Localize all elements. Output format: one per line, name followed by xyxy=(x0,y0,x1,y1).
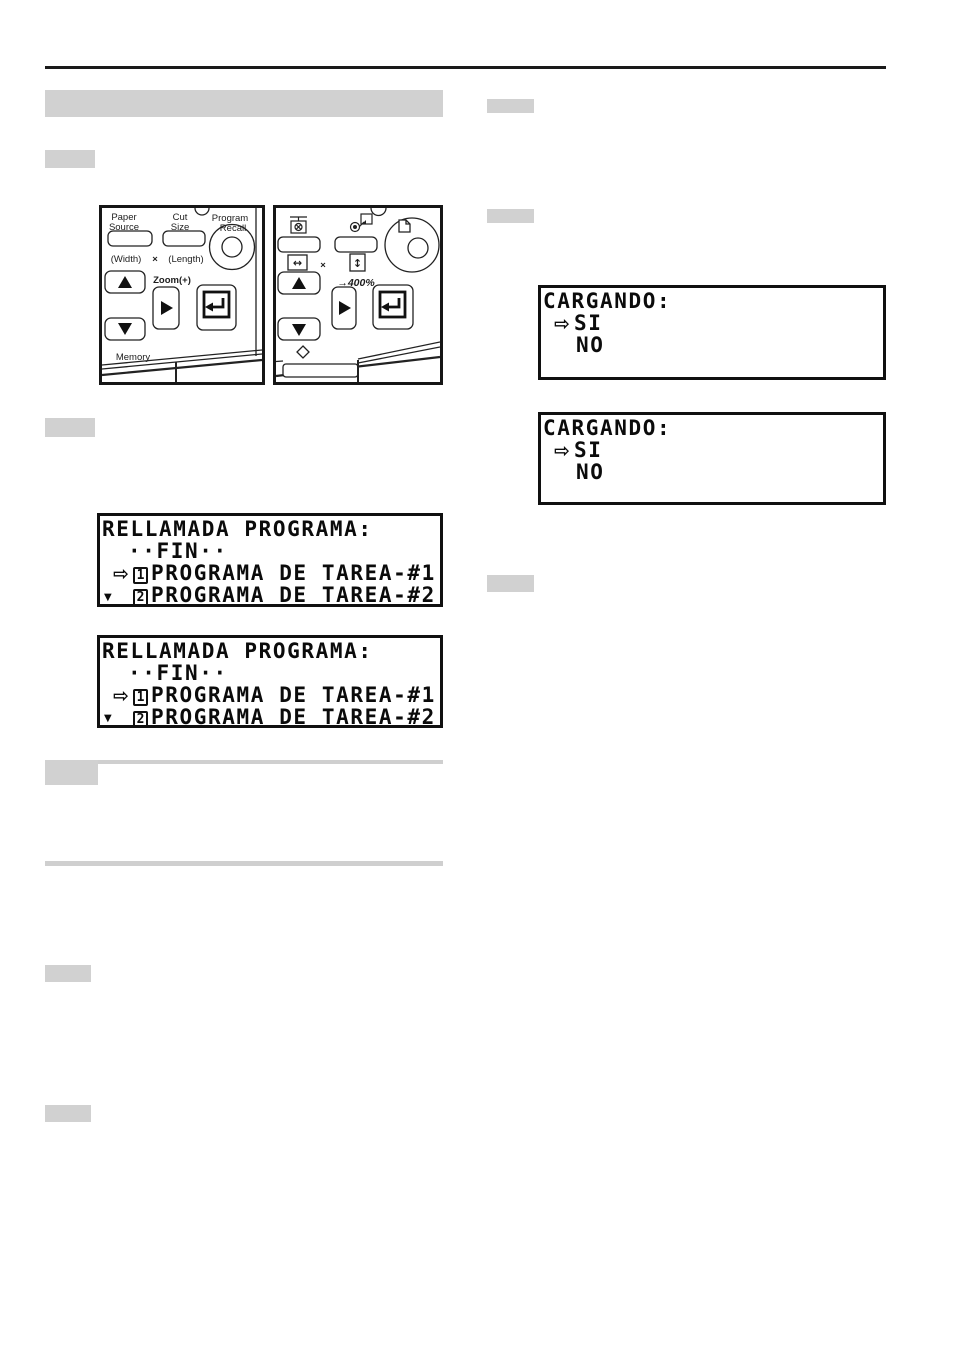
lcd-option-no: NO xyxy=(576,460,605,484)
lcd-item-2: PROGRAMA DE TAREA-#2 xyxy=(151,583,436,607)
cut-size-icon xyxy=(351,214,373,232)
enter-icon xyxy=(204,292,229,317)
right-arrow-icon xyxy=(161,301,173,315)
manual-page: Paper Source Cut Size Program Recall (Wi… xyxy=(0,0,954,1350)
note-label-badge xyxy=(45,760,98,785)
panel-notch xyxy=(195,208,209,215)
lcd-loading-display-1: CARGANDO: ⇨SI NO xyxy=(538,285,886,380)
width-icon: ↔ xyxy=(293,257,302,270)
lcd-program-recall-display-1: RELLAMADA PROGRAMA: ··FIN·· ⇨1PROGRAMA D… xyxy=(97,513,443,607)
paper-source-button xyxy=(278,237,320,252)
times-label: × xyxy=(152,254,158,265)
up-arrow-icon xyxy=(118,276,132,288)
control-panel-diagram-right: ↔ × ↕ →400% xyxy=(273,205,443,385)
lcd-item-2: PROGRAMA DE TAREA-#2 xyxy=(151,705,436,729)
lcd-title: RELLAMADA PROGRAMA: xyxy=(102,517,373,541)
header-rule xyxy=(45,66,886,69)
times-label: × xyxy=(320,260,326,271)
step-badge-r3 xyxy=(487,575,534,592)
section-title-bar xyxy=(45,90,443,117)
lcd-title: CARGANDO: xyxy=(543,289,671,313)
cursor-arrow-icon: ⇨ xyxy=(554,440,574,462)
lcd-loading-display-2: CARGANDO: ⇨SI NO xyxy=(538,412,886,505)
lcd-title: RELLAMADA PROGRAMA: xyxy=(102,639,373,663)
lcd-end-item: ··FIN·· xyxy=(128,539,228,563)
cursor-arrow-icon: ⇨ xyxy=(113,563,133,585)
note-bottom-rule xyxy=(45,861,443,866)
lcd-option-yes: SI xyxy=(574,438,603,462)
control-panel-diagram-left: Paper Source Cut Size Program Recall (Wi… xyxy=(99,205,265,385)
boxed-digit: 2 xyxy=(133,589,148,606)
boxed-digit: 2 xyxy=(133,711,148,728)
cursor-arrow-icon: ⇨ xyxy=(113,685,133,707)
down-arrow-icon xyxy=(292,324,306,336)
right-arrow-icon xyxy=(339,301,351,315)
cut-size-button xyxy=(163,231,205,246)
program-recall-dial-center xyxy=(408,238,428,258)
lcd-item-1: PROGRAMA DE TAREA-#1 xyxy=(151,561,436,585)
paper-source-button xyxy=(108,231,152,246)
cursor-arrow-icon: ⇨ xyxy=(554,313,574,335)
paper-slot xyxy=(283,364,358,377)
step-badge-r1 xyxy=(487,99,534,113)
cut-size-button xyxy=(335,237,377,252)
lcd-option-yes: SI xyxy=(574,311,603,335)
boxed-digit: 1 xyxy=(133,567,148,584)
length-label: (Length) xyxy=(168,254,203,265)
step-badge-3 xyxy=(45,965,91,982)
length-icon: ↕ xyxy=(353,257,362,270)
svg-text:Recall: Recall xyxy=(220,223,246,234)
step-badge-1 xyxy=(45,150,95,168)
diamond-icon xyxy=(297,346,309,358)
width-label: (Width) xyxy=(111,254,142,265)
lcd-option-no: NO xyxy=(576,333,605,357)
scroll-down-icon: ▼ xyxy=(104,714,112,724)
zoom-label: Zoom(+) xyxy=(153,275,191,286)
lcd-end-item: ··FIN·· xyxy=(128,661,228,685)
program-recall-dial-center xyxy=(222,237,242,257)
step-badge-4 xyxy=(45,1105,91,1122)
down-arrow-icon xyxy=(118,323,132,335)
lcd-item-1: PROGRAMA DE TAREA-#1 xyxy=(151,683,436,707)
up-arrow-icon xyxy=(292,277,306,289)
boxed-digit: 1 xyxy=(133,689,148,706)
panel-notch xyxy=(371,208,386,216)
enter-icon xyxy=(380,292,405,317)
paper-source-icon xyxy=(290,217,307,233)
lcd-program-recall-display-2: RELLAMADA PROGRAMA: ··FIN·· ⇨1PROGRAMA D… xyxy=(97,635,443,728)
step-badge-2 xyxy=(45,418,95,437)
step-badge-r2 xyxy=(487,209,534,223)
lcd-title: CARGANDO: xyxy=(543,416,671,440)
program-recall-icon xyxy=(399,220,410,232)
scroll-down-icon: ▼ xyxy=(104,593,112,603)
note-top-rule xyxy=(98,760,443,764)
